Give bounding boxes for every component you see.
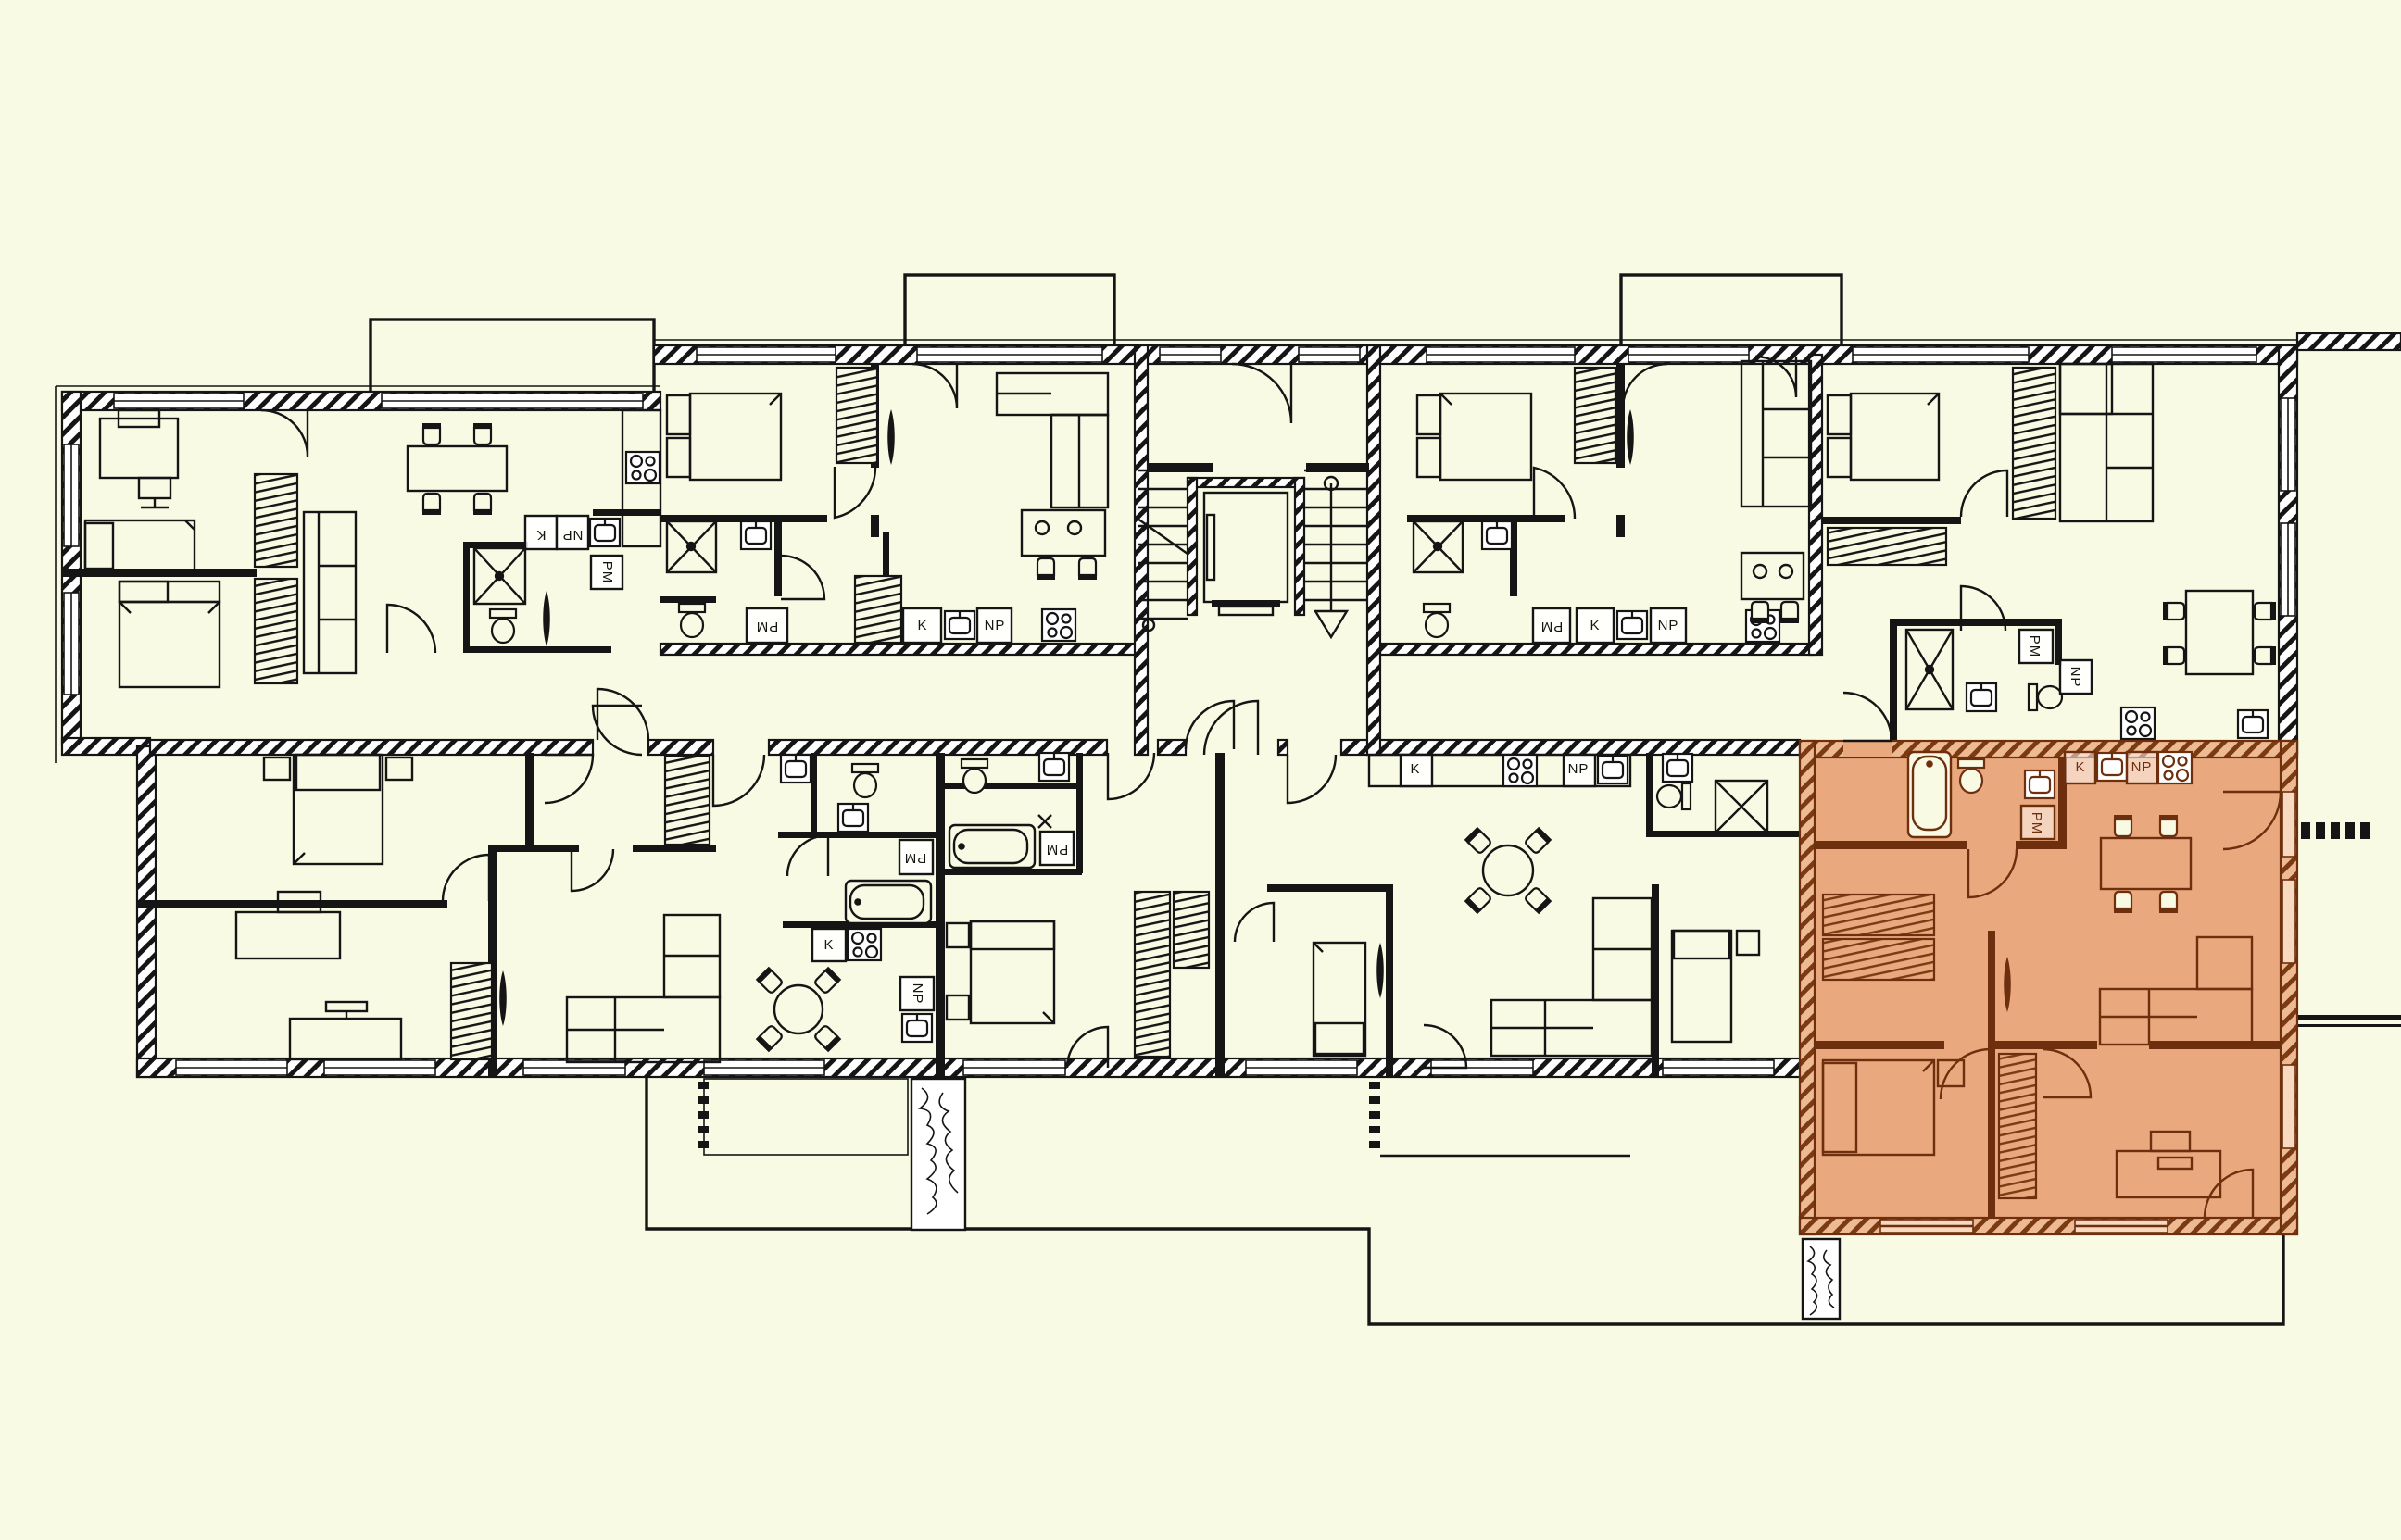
room-label: NP xyxy=(1658,618,1679,633)
room-label: NP xyxy=(2068,667,2083,688)
room-label: NP xyxy=(910,983,925,1005)
highlighted-apartment[interactable] xyxy=(1800,693,2297,1234)
room-label: PM xyxy=(904,850,927,866)
room-label: K xyxy=(1590,618,1600,633)
room-label: NP xyxy=(1568,761,1590,777)
room-label: PM xyxy=(2027,635,2043,658)
room-label: NP xyxy=(985,618,1006,633)
floor-plan-page: KNPPMPMKNPPMKNPPMNPPMKNPPMKNPKNPPM xyxy=(0,0,2401,1540)
room-label: PM xyxy=(599,561,615,584)
room-label: PM xyxy=(756,619,779,634)
planter-strip xyxy=(911,1079,965,1230)
room-label: K xyxy=(1410,761,1420,777)
room-label: K xyxy=(2075,759,2085,775)
floor-plan-drawing: KNPPMPMKNPPMKNPPMNPPMKNPPMKNPKNPPM xyxy=(0,0,2401,1540)
room-label: PM xyxy=(2029,812,2044,835)
room-label: NP xyxy=(2131,759,2153,775)
room-label: K xyxy=(535,527,546,543)
room-label: NP xyxy=(562,527,584,543)
room-label: K xyxy=(917,618,927,633)
room-label: PM xyxy=(1046,842,1069,858)
room-label: PM xyxy=(1540,619,1564,634)
room-label: K xyxy=(823,937,834,953)
planter-strip-2 xyxy=(1803,1239,1840,1319)
